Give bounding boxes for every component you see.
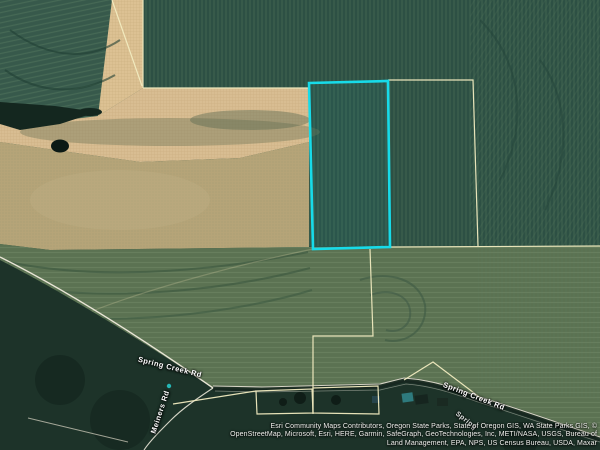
- building-teal-roof: [401, 392, 413, 402]
- selected-parcel-outline[interactable]: [309, 81, 390, 249]
- building: [415, 394, 429, 405]
- poi-marker-dot: [167, 384, 171, 388]
- map-viewport[interactable]: Spring Creek Rd Spring Creek Rd Meiners …: [0, 0, 600, 450]
- map-canvas[interactable]: [0, 0, 600, 450]
- building: [437, 398, 448, 406]
- pond: [51, 140, 69, 153]
